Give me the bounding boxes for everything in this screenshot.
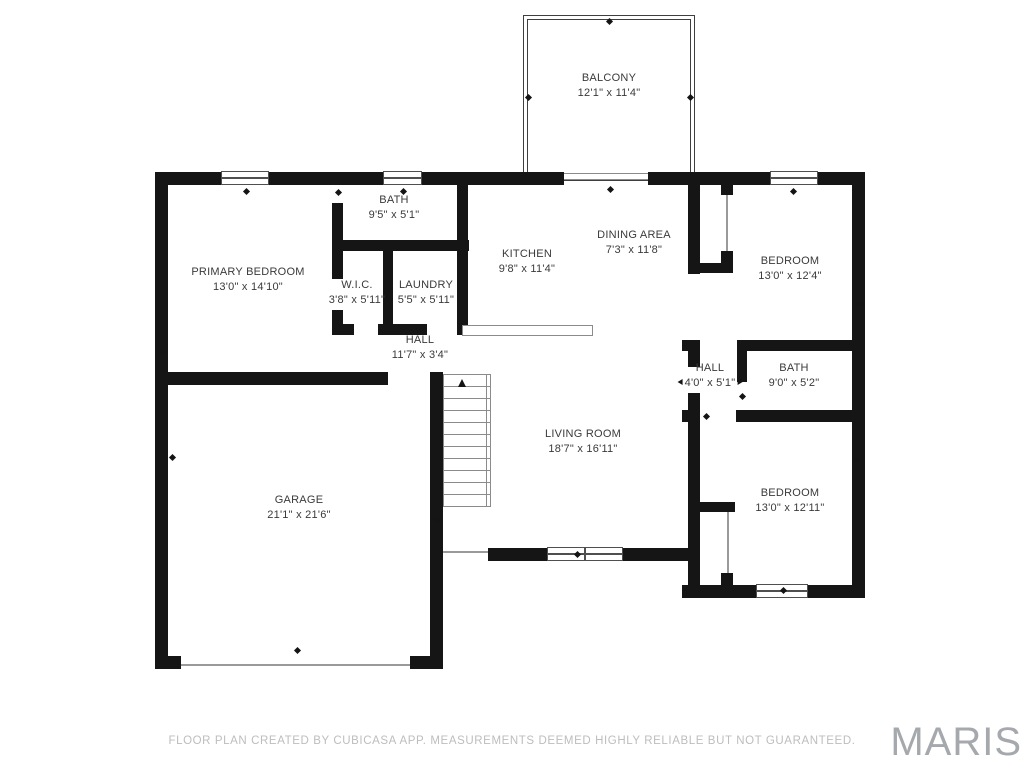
room-label-bedroom-tr: BEDROOM 13'0" x 12'4" — [758, 254, 822, 284]
room-label-laundry: LAUNDRY 5'5" x 5'11" — [398, 278, 454, 308]
wall-closet-tr-bottom — [688, 263, 733, 273]
room-dims: 13'0" x 14'10" — [191, 280, 304, 295]
stair-up-arrow-icon — [458, 379, 466, 387]
wall-hall2-top-left — [682, 340, 700, 351]
room-name: BEDROOM — [755, 486, 824, 501]
garage-door-line — [181, 664, 410, 666]
room-dims: 9'0" x 5'2" — [769, 376, 820, 391]
marker-tick — [703, 413, 710, 420]
window-bath-top — [383, 171, 422, 185]
wall-closet-br-jamb — [721, 573, 733, 587]
marker-tick — [169, 454, 176, 461]
room-label-hall-right: HALL 4'0" x 5'1" — [676, 361, 745, 391]
room-dims: 4'0" x 5'1" — [676, 376, 745, 391]
room-name: HALL — [676, 361, 745, 376]
room-dims: 7'3" x 11'8" — [597, 243, 671, 258]
room-name: PRIMARY BEDROOM — [191, 265, 304, 280]
wall-bath2-top — [737, 340, 853, 351]
room-label-garage: GARAGE 21'1" x 21'6" — [267, 493, 331, 523]
measure-arrow-left-icon — [678, 379, 683, 385]
marker-tick — [243, 188, 250, 195]
room-name: BATH — [769, 361, 820, 376]
marker-tick — [294, 647, 301, 654]
room-name: W.I.C. — [329, 278, 385, 293]
wall-wic-bottom-left — [332, 324, 354, 335]
room-dims: 5'5" x 5'11" — [398, 293, 454, 308]
wall-closet-tr-jamb-bottom — [721, 251, 733, 263]
wall-closet-tr-jamb-top — [721, 185, 733, 195]
wall-closet-br-top — [688, 502, 735, 512]
room-name: GARAGE — [267, 493, 331, 508]
marker-tick — [335, 189, 342, 196]
closet-br-door-line — [727, 512, 729, 573]
window-bedroom-tr — [770, 171, 818, 185]
measure-arrow-right-icon — [737, 379, 742, 385]
room-dims: 9'5" x 5'1" — [369, 208, 420, 223]
stair-rail — [486, 375, 487, 506]
marker-tick — [790, 188, 797, 195]
wall-hall2-left-lower — [688, 393, 700, 410]
room-dims: 13'0" x 12'11" — [755, 501, 824, 516]
room-dims: 13'0" x 12'4" — [758, 269, 822, 284]
wall-exterior-right — [852, 172, 865, 598]
room-name: BEDROOM — [758, 254, 822, 269]
room-label-living: LIVING ROOM 18'7" x 16'11" — [545, 427, 621, 457]
room-dims: 18'7" x 16'11" — [545, 442, 621, 457]
wall-dining-bedroom-divider — [688, 184, 700, 274]
room-name: KITCHEN — [499, 247, 555, 262]
room-label-hall-main: HALL 11'7" x 3'4" — [392, 333, 448, 363]
room-name: BALCONY — [578, 71, 641, 86]
wall-exterior-left — [155, 172, 168, 669]
wall-garage-top — [155, 372, 388, 385]
maris-logo: MARIS — [890, 720, 1022, 765]
room-name: LIVING ROOM — [545, 427, 621, 442]
room-label-bath-right: BATH 9'0" x 5'2" — [769, 361, 820, 391]
room-name: LAUNDRY — [398, 278, 454, 293]
room-label-primary-bedroom: PRIMARY BEDROOM 13'0" x 14'10" — [191, 265, 304, 295]
wall-exterior-top-right — [648, 172, 865, 185]
wall-kitchen-left — [457, 184, 468, 335]
kitchen-counter — [462, 325, 593, 336]
staircase — [443, 374, 491, 507]
room-label-wic: W.I.C. 3'8" x 5'11" — [329, 278, 385, 308]
room-dims: 3'8" x 5'11" — [329, 293, 385, 308]
entry-opening-line — [443, 551, 488, 553]
floor-plan: BALCONY 12'1" x 11'4" BATH 9'5" x 5'1" P… — [0, 0, 1024, 768]
room-name: BATH — [369, 193, 420, 208]
closet-tr-door-line — [726, 195, 728, 251]
window-primary-bedroom — [221, 171, 269, 185]
room-dims: 9'8" x 11'4" — [499, 262, 555, 277]
room-name: HALL — [392, 333, 448, 348]
wall-garage-bottom-left-stub — [155, 656, 181, 669]
disclaimer-text: FLOOR PLAN CREATED BY CUBICASA APP. MEAS… — [0, 735, 1024, 747]
room-name: DINING AREA — [597, 228, 671, 243]
room-label-bedroom-br: BEDROOM 13'0" x 12'11" — [755, 486, 824, 516]
wall-wic-left-upper — [332, 251, 343, 279]
marker-tick — [607, 186, 614, 193]
room-dims: 21'1" x 21'6" — [267, 508, 331, 523]
room-label-balcony: BALCONY 12'1" x 11'4" — [578, 71, 641, 101]
wall-bedroom-br-top-left — [682, 410, 700, 422]
room-label-dining: DINING AREA 7'3" x 11'8" — [597, 228, 671, 258]
wall-exterior-top-left — [155, 172, 564, 185]
sliding-door — [563, 173, 649, 180]
room-dims: 12'1" x 11'4" — [578, 86, 641, 101]
room-label-bath-top: BATH 9'5" x 5'1" — [369, 193, 420, 223]
wall-bedroom-br-top-right — [736, 410, 865, 422]
window-living-right — [585, 547, 623, 561]
marker-tick — [739, 393, 746, 400]
room-dims: 11'7" x 3'4" — [392, 348, 448, 363]
wall-bath-top-bottom — [332, 240, 469, 251]
room-label-kitchen: KITCHEN 9'8" x 11'4" — [499, 247, 555, 277]
